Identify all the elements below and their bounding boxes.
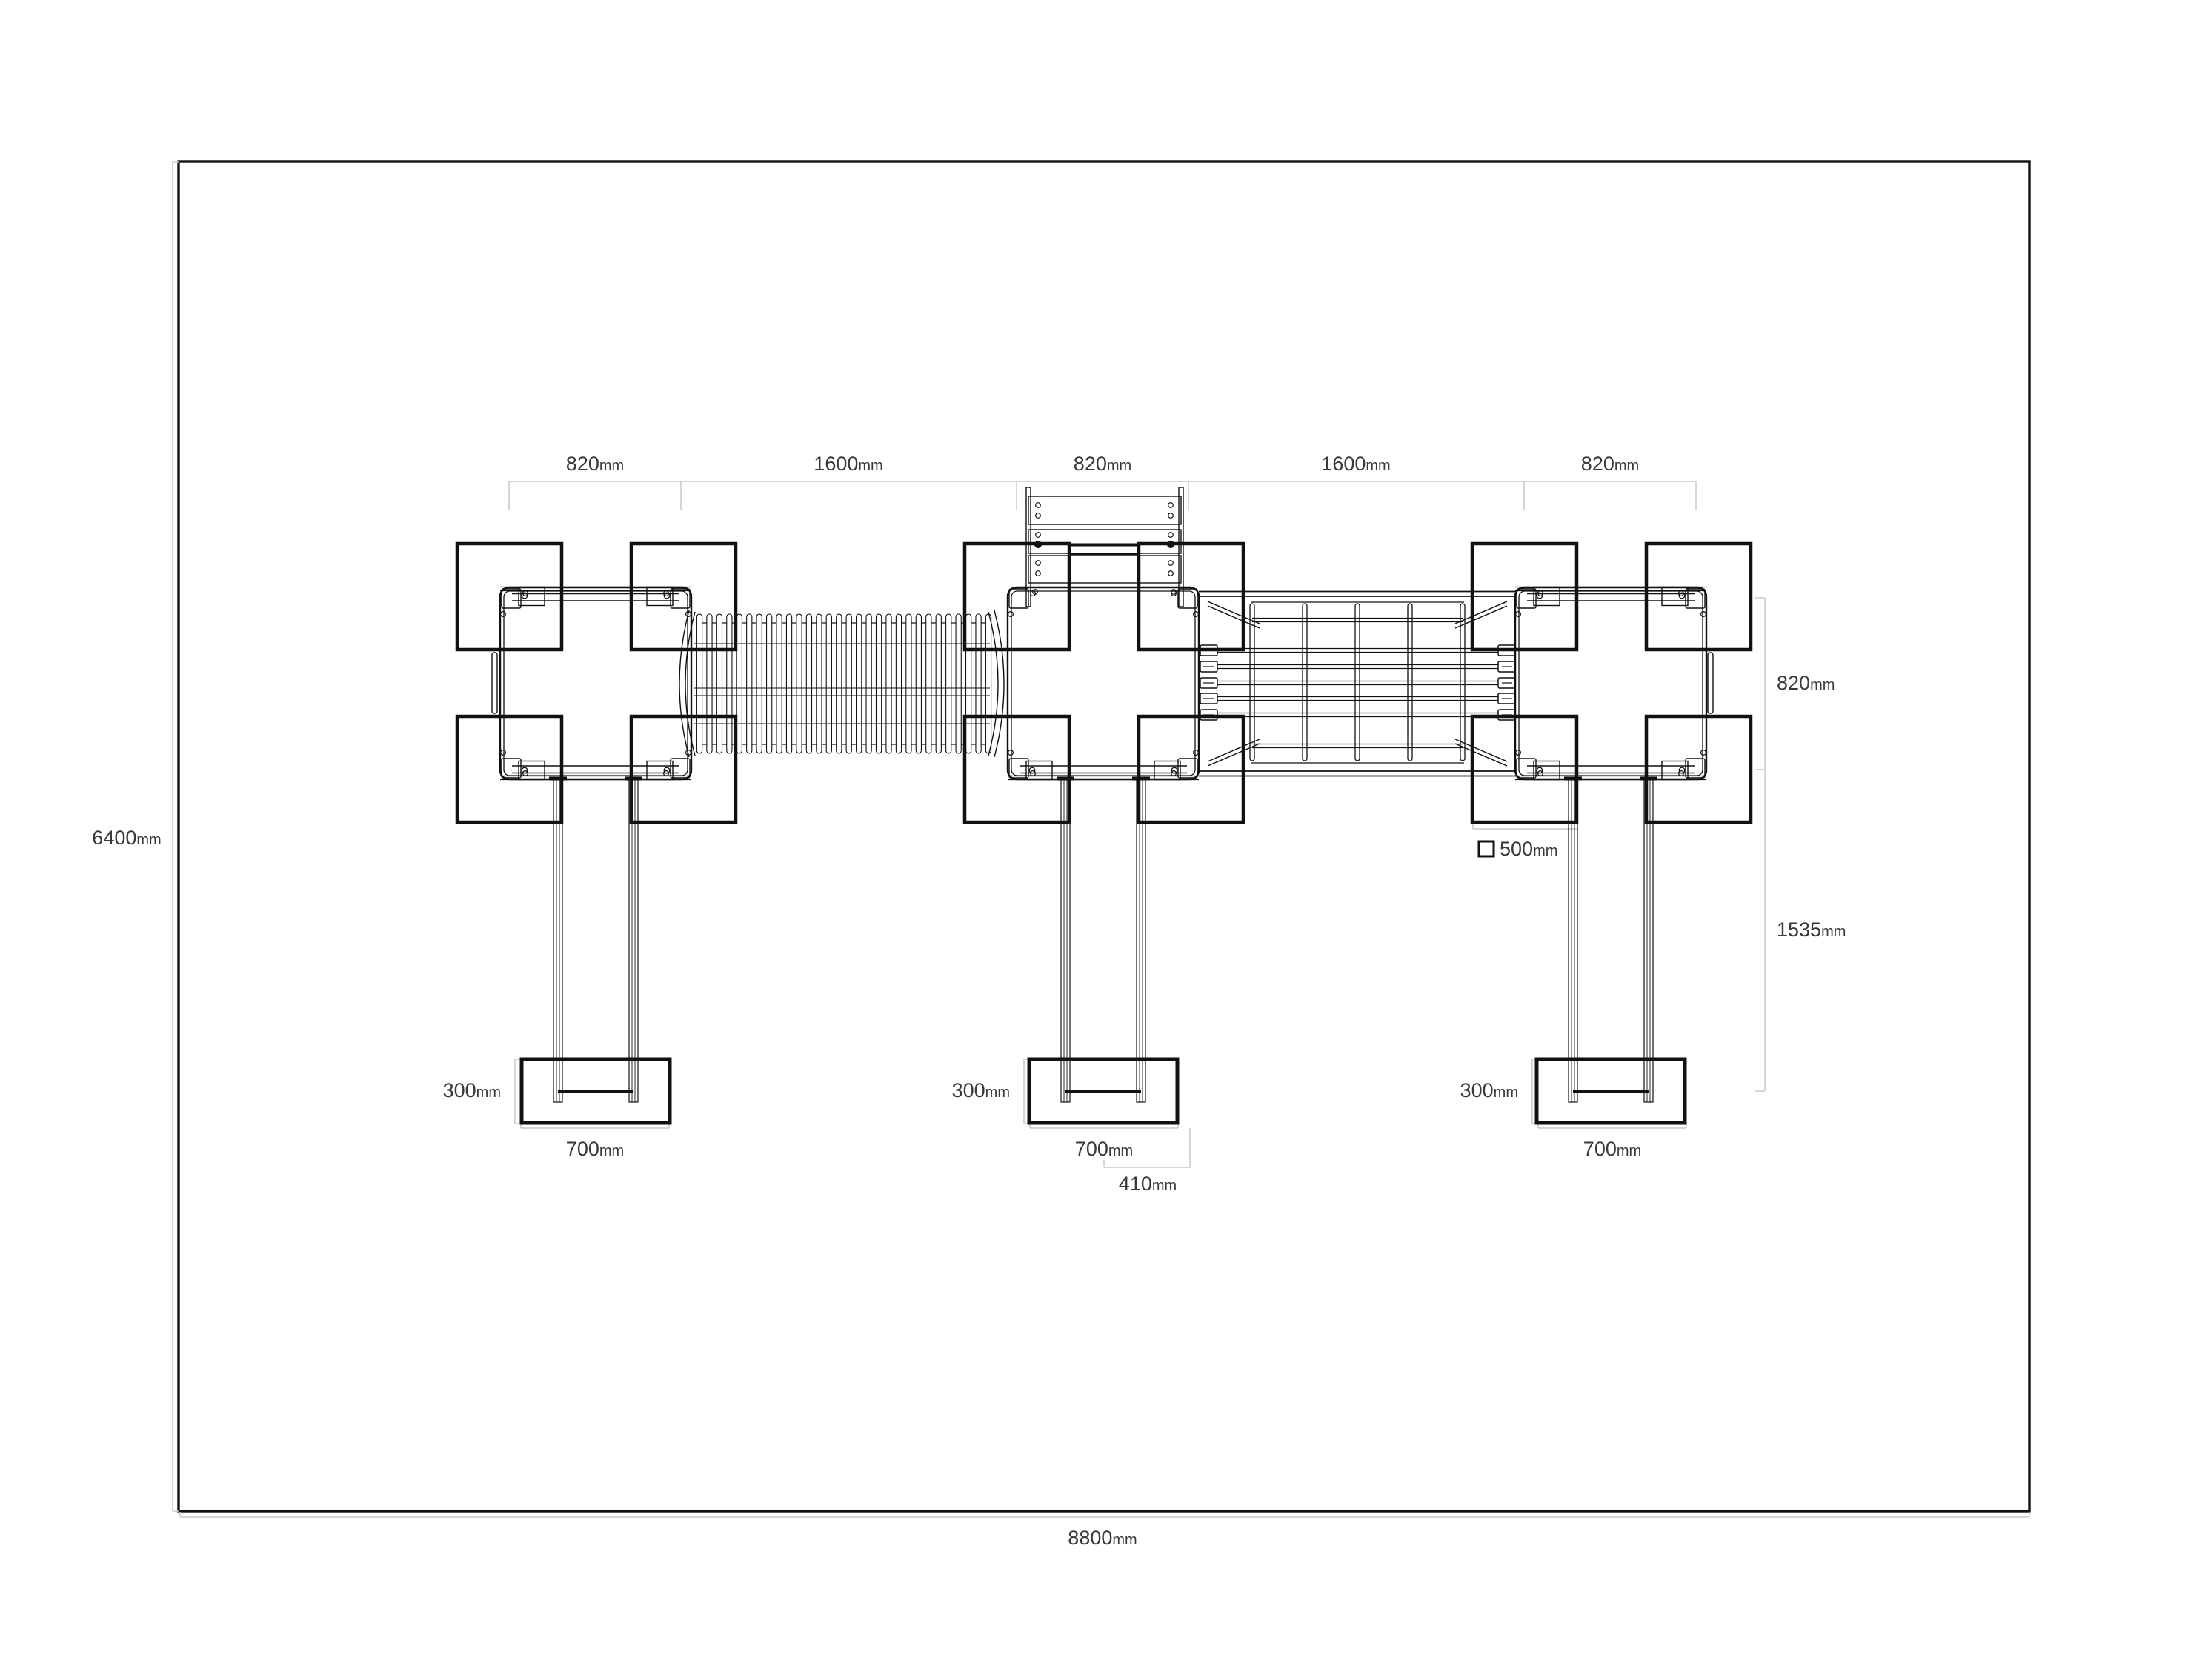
platform-outline-outer: [500, 587, 691, 779]
rung-hole: [1036, 513, 1041, 519]
tunnel-corrugation-ridge: [796, 614, 802, 753]
tunnel-corrugation-ridge: [946, 614, 951, 753]
dim-label-footing-offset: 410mm: [1119, 1173, 1177, 1195]
rung-hole: [1036, 533, 1041, 538]
corner-bracket: [1178, 759, 1197, 778]
bolt: [501, 750, 506, 756]
tunnel-corrugation-ridge: [866, 614, 871, 753]
tunnel-corrugation-ridge: [896, 614, 901, 753]
bolt: [501, 612, 506, 617]
tunnel-corrugation-ridge: [696, 614, 702, 753]
bolt: [1194, 750, 1199, 756]
plan-drawing-canvas: 820mm 1600mm 820mm 1600mm 820mm 6400mm 8…: [0, 0, 2205, 1680]
tunnel-flange: [994, 610, 1004, 757]
bolt: [1701, 612, 1706, 617]
ladder: [1026, 487, 1183, 607]
leg-inner-line: [556, 779, 559, 1102]
rail-bolt: [1029, 767, 1035, 773]
corner-bracket: [1009, 589, 1028, 608]
tunnel-corrugation-ridge: [776, 614, 782, 753]
boundary-rectangle: [179, 161, 2029, 1511]
corner-bracket: [1009, 759, 1028, 778]
leg-inner-line: [1064, 779, 1067, 1102]
tunnel-corrugation-ridge: [826, 614, 831, 753]
leg: [1137, 779, 1145, 1102]
tunnel-corrugation-ridge: [876, 614, 881, 753]
tunnel-corrugation-ridge: [786, 614, 791, 753]
bolt: [1008, 612, 1014, 617]
rail-bolt: [664, 767, 670, 773]
leg: [1061, 779, 1070, 1102]
corner-bracket: [1178, 589, 1197, 608]
corner-bracket: [1686, 759, 1705, 778]
plan-drawing: 820mm 1600mm 820mm 1600mm 820mm 6400mm 8…: [0, 0, 2205, 1680]
bolt: [1194, 612, 1199, 617]
safety-zone-boundary: [179, 161, 2029, 1511]
rail-end-plate: [519, 587, 545, 606]
tower-right: [1472, 544, 1751, 1123]
rail-bolt: [1679, 767, 1685, 773]
tunnel-corrugation-ridge: [747, 614, 752, 753]
rail-end-plate: [647, 587, 673, 606]
corner-bracket: [1686, 589, 1705, 608]
leg: [1644, 779, 1653, 1102]
ladder-rung: [1028, 530, 1181, 553]
platform-outline-inner: [504, 591, 688, 776]
ladder-rung: [1028, 556, 1181, 583]
dim-label-top-span-5: 820mm: [1581, 453, 1639, 475]
corner-bracket: [671, 759, 690, 778]
rail-end-plate: [1534, 761, 1560, 780]
platform-outline-inner: [1011, 591, 1195, 776]
tunnel-flange: [685, 612, 695, 756]
tunnel-corrugation-ridge: [886, 614, 891, 753]
corner-bracket: [671, 589, 690, 608]
corner-bracket: [1517, 589, 1536, 608]
dim-label-footing-width-center: 700mm: [1075, 1138, 1133, 1160]
ground-pad: [457, 544, 562, 650]
rung-hole: [1036, 503, 1041, 508]
dim-label-top-span-2: 1600mm: [814, 453, 882, 475]
tunnel-corrugation-ridge: [956, 614, 961, 753]
dim-label-overall-width: 8800mm: [1068, 1527, 1137, 1549]
tunnel-corrugation-ridge: [936, 614, 941, 753]
dim-label-overall-height: 6400mm: [92, 827, 161, 849]
ground-pad: [965, 544, 1069, 650]
dim-label-top-span-4: 1600mm: [1321, 453, 1390, 475]
rung-hole: [1168, 561, 1174, 566]
tunnel-corrugation-ridge: [966, 614, 971, 753]
tunnel-corrugation-ridge: [817, 614, 822, 753]
rung-hole: [1036, 571, 1041, 576]
tunnel-corrugation-ridge: [806, 614, 811, 753]
dim-label-footing-depth-center: 300mm: [952, 1079, 1010, 1101]
dim-label-top-span-1: 820mm: [566, 453, 624, 475]
net-diagonal-brace: [1455, 601, 1507, 624]
dim-label-footing-width-left: 700mm: [566, 1138, 624, 1160]
tunnel-corrugation-ridge: [926, 614, 931, 753]
leg: [629, 779, 638, 1102]
platform-outline-inner: [1519, 591, 1703, 776]
leg-inner-line: [1647, 779, 1650, 1102]
corner-bracket: [502, 759, 521, 778]
bolt: [1516, 750, 1521, 756]
rung-hole: [1168, 503, 1174, 508]
rail-bolt: [522, 767, 528, 773]
net-post: [1460, 604, 1465, 761]
bolt: [1516, 612, 1521, 617]
platform-outline-outer: [1515, 587, 1706, 779]
rail-end-plate: [1154, 761, 1180, 780]
net-post: [1250, 604, 1254, 761]
ground-pad: [1472, 716, 1577, 822]
leg-inner-line: [1140, 779, 1143, 1102]
dim-label-platform-depth: 820mm: [1777, 672, 1835, 694]
ground-pad: [965, 716, 1069, 822]
corner-bracket: [502, 589, 521, 608]
dim-label-footing-depth-left: 300mm: [443, 1079, 501, 1101]
corrugated-tunnel: [679, 610, 1004, 757]
rung-bolt: [1035, 541, 1042, 548]
net-diagonal-brace: [1208, 606, 1260, 628]
dim-label-top-span-3: 820mm: [1074, 453, 1131, 475]
tunnel-corrugation-ridge: [727, 614, 732, 753]
rail-end-plate: [647, 761, 673, 780]
tunnel-corrugation-ridge: [767, 614, 772, 753]
rail-end-plate: [1534, 587, 1560, 606]
net-diagonal-brace: [1208, 601, 1260, 624]
tunnel-corrugation-ridge: [716, 614, 722, 753]
tunnel-corrugation-ridge: [985, 614, 991, 753]
tunnel-corrugation-ridge: [906, 614, 911, 753]
tunnel-corrugation-ridge: [736, 614, 742, 753]
tunnel-corrugation-ridge: [846, 614, 851, 753]
bolt: [1701, 750, 1706, 756]
towers: [457, 544, 1751, 1123]
side-rail-left-tower: [492, 653, 497, 713]
net-diagonal-brace: [1455, 606, 1507, 628]
tunnel-flange: [988, 612, 998, 756]
rail-end-plate: [1026, 761, 1052, 780]
net-post: [1303, 604, 1307, 761]
pad-size-legend-icon: [1479, 841, 1494, 856]
leg-inner-line: [1572, 779, 1574, 1102]
tunnel-corrugation-ridge: [976, 614, 981, 753]
dim-label-footing-width-right: 700mm: [1583, 1138, 1641, 1160]
rung-bolt: [1168, 541, 1174, 548]
rail-end-plate: [519, 761, 545, 780]
rung-hole: [1168, 571, 1174, 576]
leg: [553, 779, 562, 1102]
dim-label-footing-depth-right: 300mm: [1460, 1079, 1518, 1101]
tower-center: [965, 544, 1243, 1123]
tunnel-corrugation-ridge: [707, 614, 712, 753]
side-rail-right-tower: [1708, 653, 1713, 713]
net-post: [1355, 604, 1360, 761]
leg-inner-line: [632, 779, 635, 1102]
platform-outline-outer: [1008, 587, 1199, 779]
tower-left: [457, 544, 736, 1123]
corner-bracket: [1517, 759, 1536, 778]
tunnel-corrugation-ridge: [916, 614, 921, 753]
rail-bolt: [1537, 767, 1543, 773]
net-diagonal-brace: [1208, 739, 1260, 761]
dimension-lines: [173, 162, 2029, 1517]
net-post: [1408, 604, 1412, 761]
dim-label-leg-depth: 1535mm: [1777, 919, 1846, 941]
rung-hole: [1168, 513, 1174, 519]
rail-end-plate: [1662, 587, 1688, 606]
pad-size-legend-label: 500mm: [1500, 838, 1557, 860]
net-bridge: [1199, 592, 1516, 776]
tunnel-corrugation-ridge: [756, 614, 762, 753]
rung-hole: [1168, 533, 1174, 538]
rung-hole: [1036, 561, 1041, 566]
rail-end-plate: [1662, 761, 1688, 780]
net-diagonal-brace: [1455, 739, 1507, 761]
rail-bolt: [1171, 767, 1177, 773]
bolt: [1008, 750, 1014, 756]
tunnel-corrugation-ridge: [837, 614, 842, 753]
ladder-rung: [1028, 496, 1181, 524]
tunnel-corrugation-ridge: [857, 614, 862, 753]
ground-pad: [457, 716, 562, 822]
leg: [1569, 779, 1577, 1102]
